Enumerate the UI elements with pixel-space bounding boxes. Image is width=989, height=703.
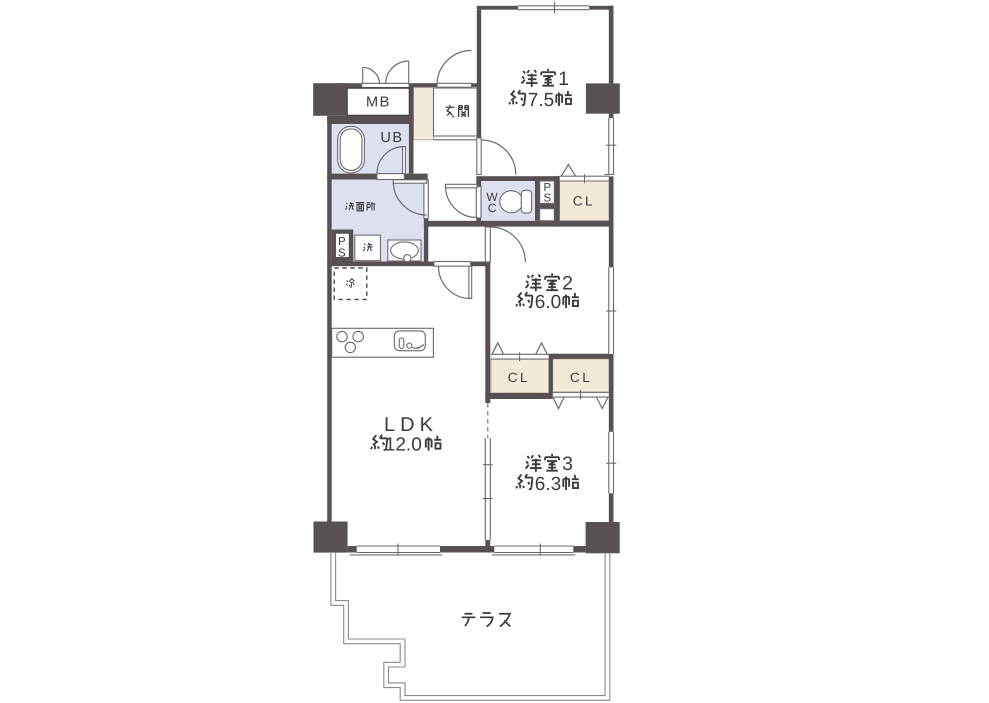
svg-text:6.3: 6.3 [535,474,561,495]
svg-text:S: S [338,247,346,259]
svg-text:CL: CL [573,194,595,209]
svg-text:LDK: LDK [384,414,438,436]
svg-text:CL: CL [570,370,592,385]
svg-text:CL: CL [508,370,530,385]
svg-text:P: P [338,236,346,248]
svg-text:C: C [488,201,497,215]
svg-text:S: S [543,193,551,205]
svg-text:12.0: 12.0 [385,434,422,455]
svg-text:MB: MB [366,95,391,111]
svg-text:1: 1 [558,68,569,90]
svg-text:6.0: 6.0 [535,292,561,313]
svg-text:7.5: 7.5 [528,90,554,111]
svg-text:UB: UB [380,130,403,146]
svg-text:2: 2 [562,273,573,295]
svg-text:3: 3 [562,453,573,475]
